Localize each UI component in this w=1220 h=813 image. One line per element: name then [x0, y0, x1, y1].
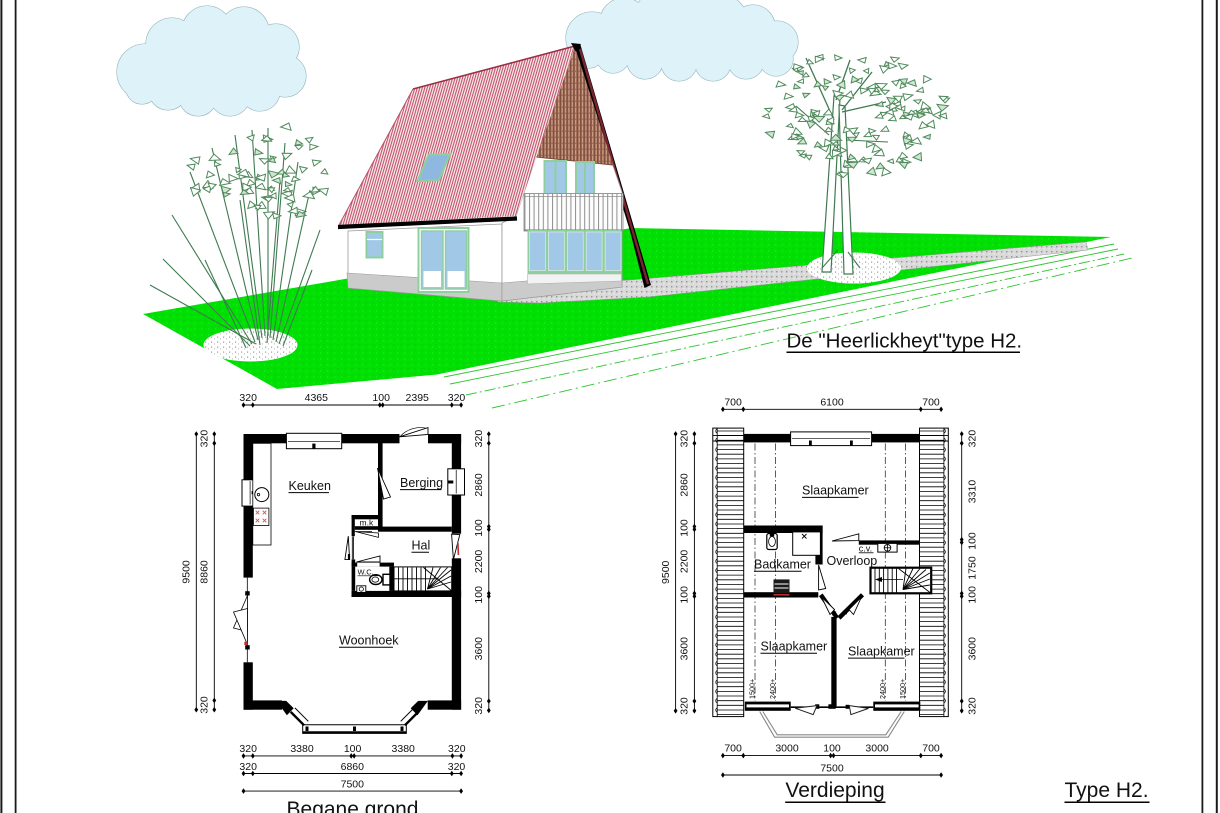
- svg-text:320: 320: [239, 761, 257, 773]
- svg-text:8860: 8860: [199, 560, 211, 584]
- svg-text:De "Heerlickheyt"type H2.: De "Heerlickheyt"type H2.: [787, 330, 1023, 353]
- svg-text:1500+: 1500+: [748, 679, 757, 699]
- svg-text:320: 320: [239, 743, 257, 755]
- svg-text:Begane grond: Begane grond: [287, 798, 419, 813]
- svg-text:W.C.: W.C.: [358, 567, 374, 576]
- svg-text:3380: 3380: [290, 743, 314, 755]
- svg-text:2200: 2200: [679, 550, 691, 574]
- svg-text:100: 100: [823, 743, 841, 755]
- svg-text:700: 700: [922, 396, 940, 408]
- svg-text:3000: 3000: [865, 743, 889, 755]
- svg-text:7500: 7500: [820, 762, 844, 774]
- svg-text:Verdieping: Verdieping: [785, 779, 884, 802]
- svg-text:Woonhoek: Woonhoek: [339, 633, 399, 647]
- svg-text:700: 700: [922, 743, 940, 755]
- svg-text:Slaapkamer: Slaapkamer: [761, 639, 828, 653]
- svg-text:320: 320: [239, 392, 257, 404]
- svg-text:2200: 2200: [473, 550, 485, 574]
- svg-text:9500: 9500: [660, 560, 672, 584]
- svg-text:Slaapkamer: Slaapkamer: [802, 484, 869, 498]
- svg-text:100: 100: [679, 519, 691, 537]
- svg-text:7500: 7500: [341, 778, 365, 790]
- svg-text:320: 320: [473, 697, 485, 715]
- svg-text:3000: 3000: [775, 743, 799, 755]
- svg-text:6860: 6860: [341, 761, 365, 773]
- svg-text:4365: 4365: [305, 392, 329, 404]
- svg-text:100: 100: [344, 743, 362, 755]
- svg-text:100: 100: [372, 392, 390, 404]
- svg-text:Slaapkamer: Slaapkamer: [848, 644, 915, 658]
- svg-text:3600: 3600: [473, 637, 485, 661]
- svg-text:Berging: Berging: [400, 476, 443, 490]
- svg-text:100: 100: [473, 586, 485, 604]
- svg-text:3600: 3600: [679, 637, 691, 661]
- svg-text:c.v.: c.v.: [859, 543, 872, 553]
- svg-text:9500: 9500: [181, 560, 193, 584]
- svg-text:3380: 3380: [392, 743, 416, 755]
- svg-text:2400+: 2400+: [878, 679, 887, 699]
- svg-text:2860: 2860: [679, 473, 691, 497]
- svg-text:100: 100: [967, 532, 979, 550]
- svg-text:320: 320: [967, 697, 979, 715]
- svg-text:320: 320: [967, 430, 979, 448]
- svg-text:100: 100: [473, 519, 485, 537]
- svg-text:320: 320: [679, 697, 691, 715]
- svg-text:100: 100: [967, 586, 979, 604]
- svg-text:700: 700: [724, 396, 742, 408]
- svg-text:320: 320: [448, 392, 466, 404]
- svg-text:Keuken: Keuken: [289, 479, 331, 493]
- svg-text:1500+: 1500+: [898, 679, 907, 699]
- svg-text:2860: 2860: [473, 473, 485, 497]
- svg-text:3310: 3310: [967, 480, 979, 504]
- svg-text:Type H2.: Type H2.: [1065, 779, 1149, 802]
- svg-text:700: 700: [724, 743, 742, 755]
- svg-text:6100: 6100: [820, 396, 844, 408]
- svg-text:320: 320: [199, 696, 211, 714]
- svg-text:2400+: 2400+: [768, 679, 777, 699]
- svg-text:320: 320: [448, 761, 466, 773]
- svg-text:Overloop: Overloop: [827, 554, 878, 568]
- svg-text:100: 100: [679, 586, 691, 604]
- svg-text:320: 320: [199, 430, 211, 448]
- svg-text:320: 320: [679, 430, 691, 448]
- svg-text:m.k: m.k: [360, 518, 374, 528]
- svg-text:Hal: Hal: [412, 539, 431, 553]
- svg-text:3600: 3600: [967, 637, 979, 661]
- svg-text:Badkamer: Badkamer: [754, 558, 811, 572]
- svg-text:320: 320: [448, 743, 466, 755]
- svg-text:1750: 1750: [967, 556, 979, 580]
- svg-text:2395: 2395: [406, 392, 430, 404]
- svg-text:320: 320: [473, 430, 485, 448]
